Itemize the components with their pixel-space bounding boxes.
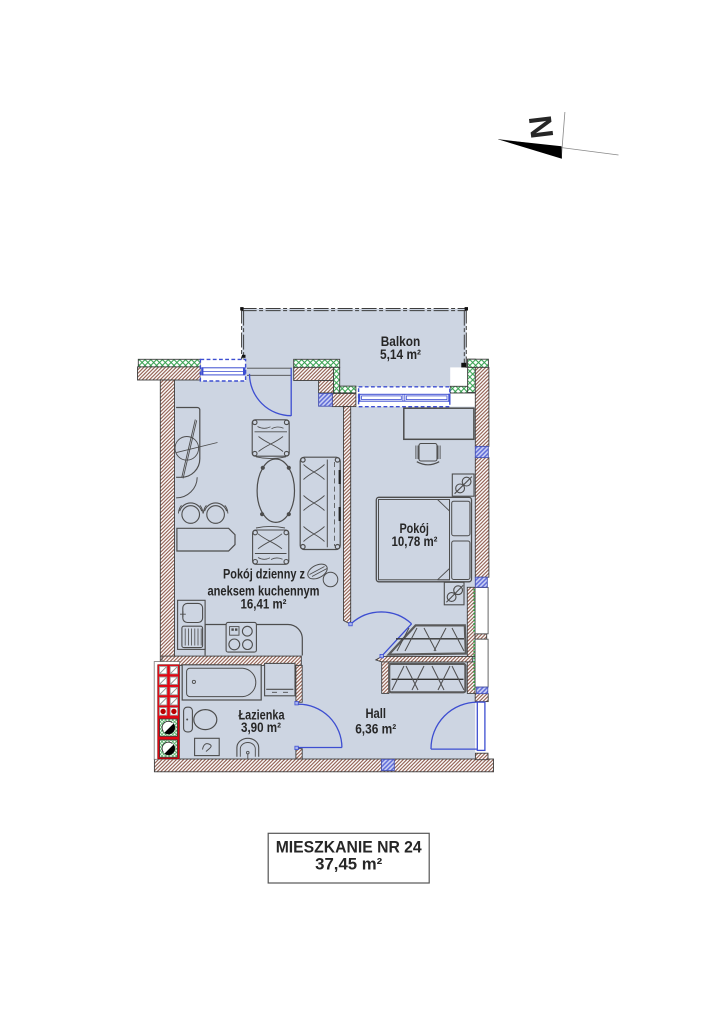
svg-text:Hall: Hall <box>365 706 386 721</box>
svg-text:3,90 m²: 3,90 m² <box>241 720 281 735</box>
svg-text:6,36 m²: 6,36 m² <box>355 721 396 736</box>
svg-text:16,41 m²: 16,41 m² <box>241 597 287 612</box>
svg-text:5,14 m²: 5,14 m² <box>380 347 421 362</box>
svg-text:Pokój dzienny z: Pokój dzienny z <box>223 567 305 582</box>
svg-text:MIESZKANIE NR 24: MIESZKANIE NR 24 <box>276 838 422 856</box>
svg-text:N: N <box>522 113 561 140</box>
svg-text:10,78 m²: 10,78 m² <box>392 534 438 549</box>
svg-text:37,45 m²: 37,45 m² <box>315 855 383 873</box>
